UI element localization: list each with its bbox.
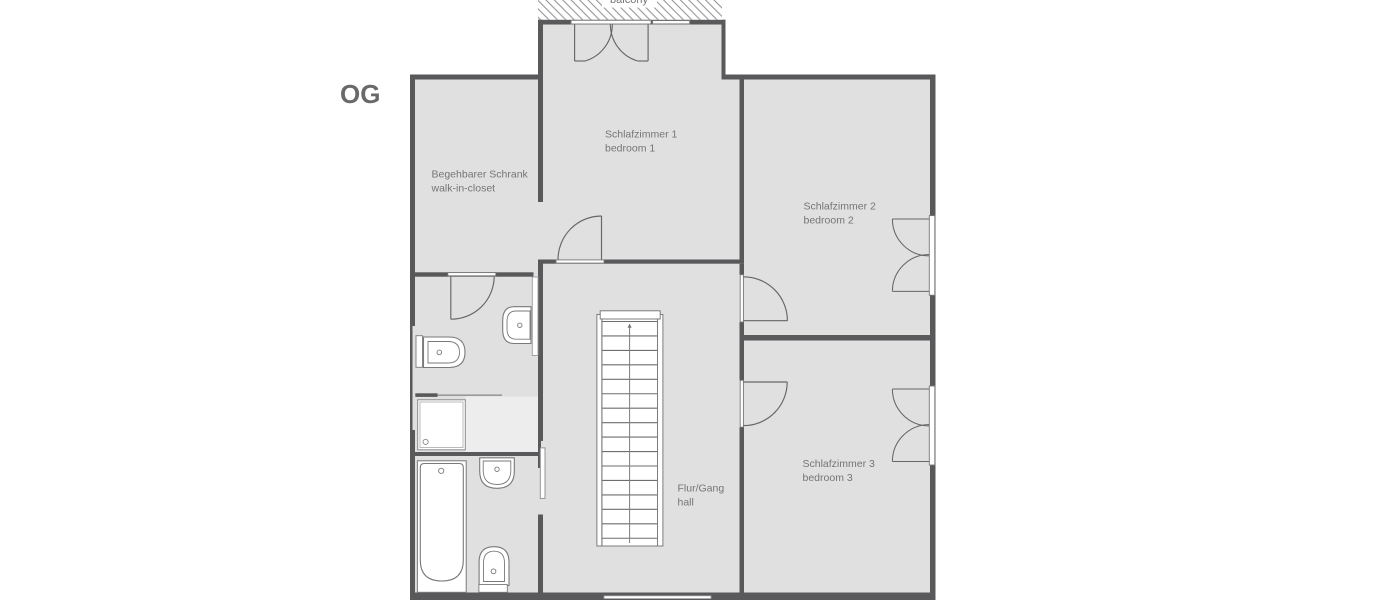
svg-text:Flur/Gang: Flur/Gang	[678, 483, 725, 495]
svg-text:hall: hall	[678, 497, 694, 509]
svg-text:balcony: balcony	[610, 0, 648, 6]
svg-text:walk-in-closet: walk-in-closet	[431, 183, 496, 195]
svg-text:Schlafzimmer 2: Schlafzimmer 2	[804, 201, 877, 213]
svg-text:Begehbarer Schrank: Begehbarer Schrank	[432, 169, 529, 181]
svg-text:OG: OG	[340, 79, 380, 109]
svg-text:Schlafzimmer 1: Schlafzimmer 1	[605, 129, 678, 141]
svg-text:bedroom 3: bedroom 3	[803, 472, 853, 484]
svg-text:bedroom 2: bedroom 2	[804, 215, 854, 227]
svg-text:bedroom 1: bedroom 1	[605, 143, 655, 155]
svg-text:Schlafzimmer 3: Schlafzimmer 3	[803, 458, 876, 470]
